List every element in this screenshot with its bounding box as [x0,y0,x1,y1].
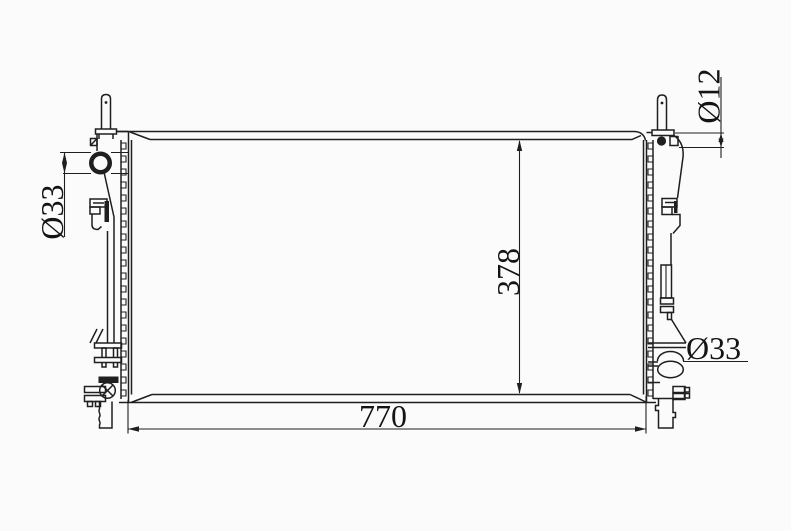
left-latch-clip [91,139,98,146]
arrowhead-up [62,153,67,164]
left-mount-pin [102,95,111,130]
left-tank-walls [108,217,115,343]
radiator-core [111,132,656,403]
right-drain-pin [656,399,676,429]
dim-label-inlet-port: Ø33 [34,184,70,239]
left-clip-lower-bar [90,207,100,214]
overflow-port-dot [657,136,666,145]
dim-label-core-width: 770 [359,398,407,434]
left-lower-bar-2 [95,358,122,363]
left-clip-hook [92,214,102,230]
inlet-port-ring [91,154,110,173]
outlet-port-ellipse [658,361,684,377]
core-top-edge-lead [130,132,150,140]
right-bracket-bar-1 [673,387,685,393]
right-pin-hole [661,102,664,105]
radiator-technical-drawing: 770 378 Ø33 Ø12 Ø33 [0,0,791,531]
left-pin-hole [105,101,108,104]
dim-label-outlet-port: Ø33 [686,330,741,366]
right-small-bracket-1 [661,298,674,304]
right-small-bracket-2 [661,307,674,313]
arrowhead-right [635,426,646,431]
right-bracket-tab-1 [685,388,690,393]
dimension-core-width: 770 [128,396,646,434]
core-bottom-edge-lead-left [131,395,152,403]
arrowhead-left [128,426,139,431]
dimension-overflow-port: Ø12 [675,68,727,158]
dim-label-overflow-port: Ø12 [691,68,727,123]
arrowhead-down [719,139,724,148]
right-bracket-tab-2 [685,394,690,399]
dimension-core-height: 378 [490,140,526,394]
right-clip-dark-rib [674,201,678,213]
left-pin-base [96,129,117,134]
left-bracket-foot-1 [88,402,93,407]
arrowhead-bottom [517,383,522,394]
dimension-inlet-port: Ø33 [34,153,91,240]
left-tank [85,95,129,429]
right-pin-base [652,130,674,136]
left-clip-dark-rib [105,201,110,222]
left-tank-flare [90,329,103,343]
right-tank [647,95,690,428]
drawing-canvas: 770 378 Ø33 Ø12 Ø33 [0,0,791,531]
dim-label-core-height: 378 [490,248,526,296]
right-clip-hook [672,215,680,234]
right-tank-contour-lower [672,320,687,344]
arrowhead-down [62,163,67,174]
right-mount-pin [658,95,667,130]
dimension-outlet-port: Ø33 [683,330,748,366]
outlet-port-upper-arc [658,352,684,362]
arrowhead-top [517,140,522,151]
core-top-edge-inner [150,136,641,140]
core-bottom-edge-lead-right [630,395,647,403]
right-clip-lower-bar [662,207,672,215]
right-small-bracket-pin [668,313,672,320]
